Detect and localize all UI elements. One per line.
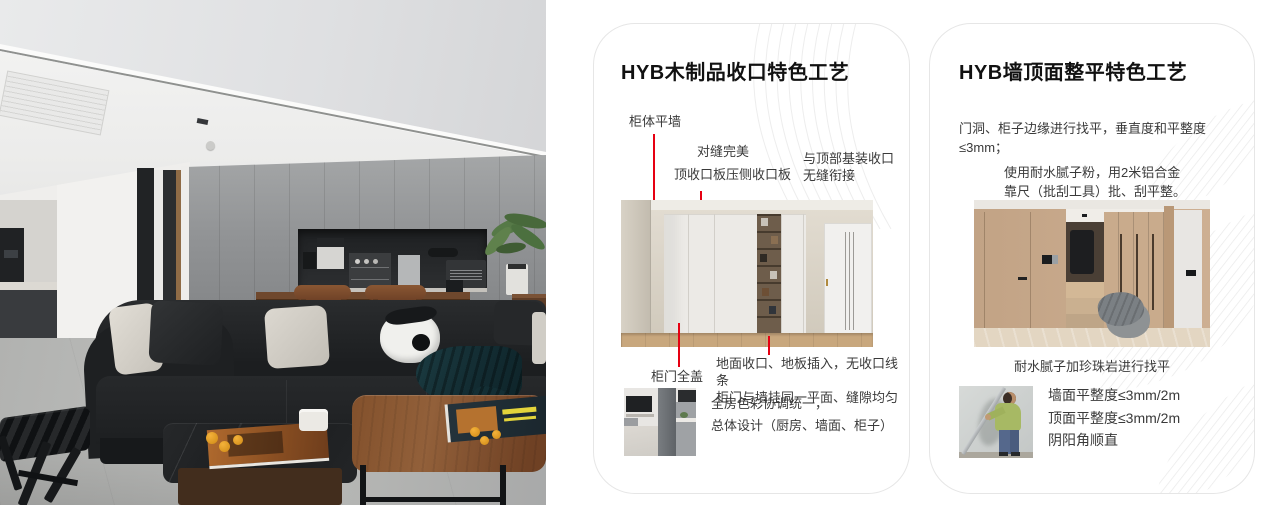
door-seam [984,212,985,330]
hanging-clothes [1070,230,1094,274]
pillow-black [148,300,223,366]
decorative-curves [733,24,903,229]
paragraph-leveling: 门洞、柜子边缘进行找平，垂直度和平整度≤3mm； [959,119,1225,157]
cabinet-seam [781,214,782,333]
pillow-beige [264,305,330,369]
espresso-machine [398,255,420,288]
orange-fruit [492,430,501,439]
kitchen-base-cabinet [0,290,58,342]
spec-corner-straightness: 阴阳角顺直 [1048,429,1180,452]
photo-ceiling [974,200,1210,209]
ceiling-sensor [206,141,215,150]
cabinet-seam [714,214,715,333]
orange-fruit [233,435,243,445]
interior-thumb-photo [624,388,696,456]
handle-groove [1152,234,1154,310]
kitchen-counter [0,282,58,290]
leader-line [678,323,680,367]
spec-ceiling-flatness: 顶面平整度≤3mm/2m [1048,407,1180,430]
note-color-harmony: 全房色彩协调统一， 总体设计（厨房、墙面、柜子） [711,393,893,437]
white-mug [299,409,328,431]
leader-line [768,336,770,355]
panda-cushion-eye [412,334,430,351]
paragraph-putty: 使用耐水腻子粉，用2米铝合金 靠尺（批刮工具）批、刮平整。 [1004,163,1186,201]
wall-switch [1042,255,1058,264]
marble-table-base [178,468,342,505]
annotation-ceiling-joint: 与顶部基装收口 无缝衔接 [803,150,894,184]
thumb-floor [624,426,658,456]
kitchen-appliance [678,390,696,402]
worker-jeans [999,430,1019,454]
render-left-wall [621,200,651,347]
card-title: HYB墙顶面整平特色工艺 [959,60,1187,86]
flatness-spec-list: 墙面平整度≤3mm/2m 顶面平整度≤3mm/2m 阴阳角顺直 [1048,384,1180,452]
potted-plant [480,215,546,300]
annotation-full-cover-door: 柜门全盖 [651,368,703,385]
doorway-frame [1164,206,1174,336]
card-wall-leveling-craft: HYB墙顶面整平特色工艺 门洞、柜子边缘进行找平，垂直度和平整度≤3mm； 使用… [929,23,1255,494]
render-white-door [824,223,872,338]
orange-fruit [219,441,230,452]
door-seam [1030,212,1031,330]
pillow-beige-edge [532,312,546,364]
card-title: HYB木制品收口特色工艺 [621,60,849,86]
cabinet-render-image [621,200,873,347]
dining-chair [365,285,426,300]
living-room-photo [0,0,546,505]
render-white-cabinet [664,214,806,333]
small-plant [680,412,688,418]
card-woodwork-craft: HYB木制品收口特色工艺 柜体平墙 对缝完美 顶收口板压侧收口板 与顶部基装收口… [593,23,910,494]
wall-socket [446,280,463,292]
shelf-rack [349,253,391,288]
kitchen-countertop [676,418,696,422]
worker-shoe [1011,452,1020,456]
annotation-perfect-seam: 对缝完美 [697,143,749,160]
wood-floor [974,328,1210,347]
render-wood-floor [621,333,873,347]
niche-rail [428,248,458,257]
wall-device [1186,270,1196,276]
cabinet-seam [688,214,689,333]
hallway-photo [974,200,1210,347]
cabinet-seam [803,214,804,333]
spec-wall-flatness: 墙面平整度≤3mm/2m [1048,384,1180,407]
plant-pot [506,264,528,295]
orange-fruit [470,427,480,437]
worker-shoe [999,452,1008,456]
worker-thumb-photo [959,386,1033,458]
render-ceiling [621,200,873,210]
gray-column [658,388,676,456]
thumb-floor [959,452,1033,458]
coffee-machine [317,238,344,269]
appliance-black [303,252,316,269]
orange-fruit [480,436,489,445]
annotation-top-panel: 顶收口板压侧收口板 [674,166,791,183]
worker-hand [985,414,991,420]
downlight [1082,214,1087,217]
tv-screen [626,396,652,412]
tv-console [626,414,654,417]
render-open-shelf [757,214,781,333]
kitchen-cabinets [676,402,696,456]
door-handle [1018,277,1027,280]
annotation-cabinet-flush-wall: 柜体平墙 [629,113,681,130]
table-frame-bar [360,497,506,502]
photo-caption: 耐水腻子加珍珠岩进行找平 [974,356,1210,375]
dining-chair [294,285,351,300]
orange-fruit [206,432,218,444]
